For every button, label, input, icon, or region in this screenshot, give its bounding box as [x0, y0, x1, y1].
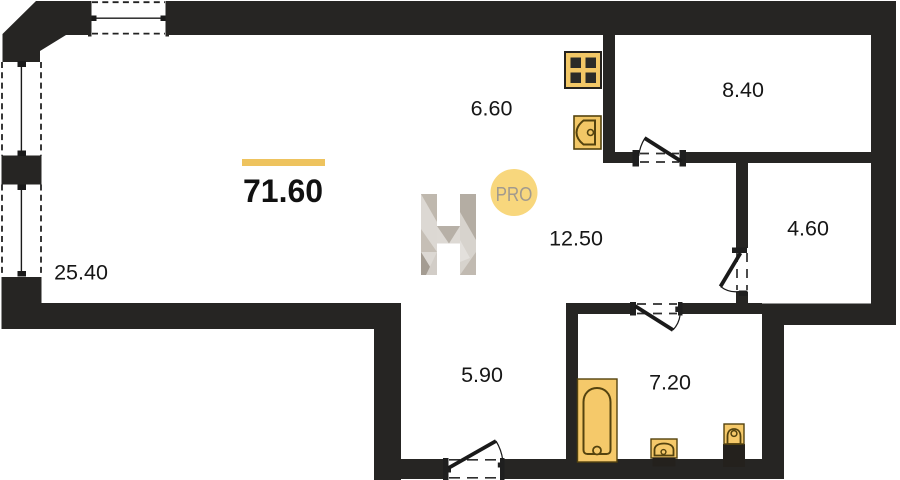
svg-text:6.60: 6.60 — [471, 97, 513, 121]
svg-text:12.50: 12.50 — [549, 227, 603, 251]
svg-text:5.90: 5.90 — [461, 363, 503, 387]
svg-text:4.60: 4.60 — [787, 217, 829, 241]
svg-text:7.20: 7.20 — [649, 371, 691, 395]
svg-text:25.40: 25.40 — [54, 261, 108, 285]
svg-text:71.60: 71.60 — [243, 173, 323, 209]
svg-text:PRO: PRO — [496, 182, 533, 205]
svg-text:8.40: 8.40 — [722, 78, 764, 102]
